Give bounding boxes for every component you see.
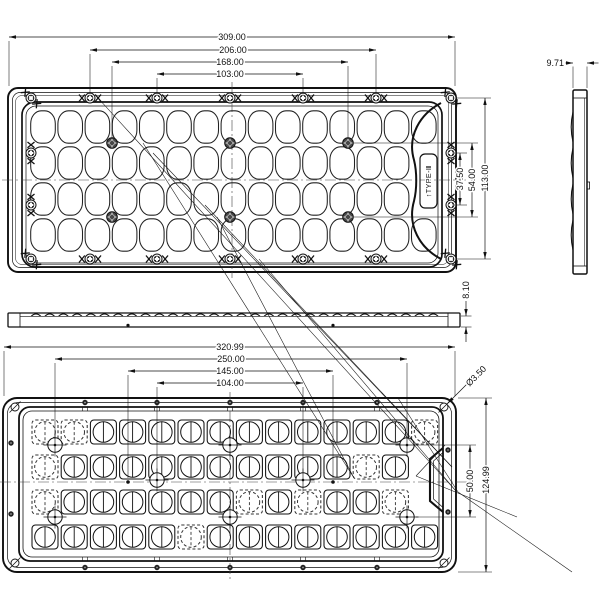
dim-arrow — [484, 398, 487, 405]
lens-oval — [31, 111, 56, 143]
dim-bottom-width-104: 104.00 — [216, 378, 244, 388]
side-profile-view — [571, 90, 589, 274]
ref-dot — [331, 324, 334, 327]
lens-oval — [194, 183, 219, 215]
dim-arrow — [296, 72, 303, 75]
lens-bump — [168, 314, 178, 316]
lens-oval — [357, 219, 382, 251]
side-view-outline — [573, 90, 587, 274]
lens-oval — [140, 111, 165, 143]
lens-oval — [194, 111, 219, 143]
lens-cell — [236, 490, 262, 514]
lens-cell — [178, 420, 204, 444]
dim-bottom-width-145: 145.00 — [216, 366, 244, 376]
lens-oval — [384, 147, 409, 179]
crosshair-screw-icon — [219, 434, 242, 457]
lens-bump — [45, 314, 55, 316]
dim-top-overall-width: 309.00 — [218, 32, 246, 42]
lens-oval — [248, 147, 273, 179]
lens-oval — [140, 219, 165, 251]
dim-arrow — [470, 210, 473, 217]
dim-top-width-206: 206.00 — [219, 45, 247, 55]
dim-top-width-103: 103.00 — [216, 69, 244, 79]
dim-arrow — [448, 345, 455, 348]
lens-cell — [120, 420, 146, 444]
lens-cell — [236, 525, 262, 549]
dim-arrow — [90, 48, 97, 51]
lens-bump — [86, 314, 96, 316]
lens-oval — [276, 111, 301, 143]
rivet-dot-icon — [8, 440, 13, 445]
lens-oval — [140, 147, 165, 179]
dim-top-height-37: 37.50 — [455, 168, 465, 191]
lens-oval — [221, 147, 246, 179]
torx-screw-icon — [225, 212, 236, 223]
lens-bump — [182, 314, 192, 316]
lens-cell — [120, 490, 146, 514]
lens-bump — [72, 314, 82, 316]
rail-screw-icon — [219, 254, 241, 264]
lens-cell — [382, 525, 408, 549]
lens-oval — [276, 219, 301, 251]
lens-cell — [90, 420, 116, 444]
rivet-dot-icon — [445, 447, 450, 452]
torx-screw-icon — [107, 138, 118, 149]
dim-arrow — [587, 61, 594, 64]
lens-bump — [374, 314, 384, 316]
dim-bottom-inner-height: 50.00 — [465, 470, 475, 493]
lens-cell — [61, 525, 87, 549]
rivet-dot-icon — [8, 511, 13, 516]
dim-bottom-outer-height: 124.99 — [481, 466, 491, 494]
lens-oval — [31, 219, 56, 251]
lens-cell — [324, 455, 350, 479]
rivet-dot-icon — [154, 565, 159, 570]
lens-oval — [384, 219, 409, 251]
lens-oval — [167, 219, 192, 251]
lens-bump — [415, 314, 425, 316]
lens-cell — [90, 525, 116, 549]
lens-cell — [412, 525, 438, 549]
lens-bump — [333, 314, 343, 316]
lens-oval — [58, 147, 83, 179]
dim-arrow — [483, 252, 486, 259]
lens-bump — [59, 314, 69, 316]
dim-arrow — [464, 309, 467, 316]
lens-oval — [112, 147, 137, 179]
top-view — [2, 82, 466, 278]
rail-screw-icon — [146, 254, 168, 264]
lens-oval — [248, 111, 273, 143]
dim-arrow — [369, 48, 376, 51]
profile-outline — [8, 313, 460, 327]
dim-top-height-113: 113.00 — [480, 165, 490, 192]
lens-bump — [346, 314, 356, 316]
lens-oval — [194, 147, 219, 179]
lens-oval — [85, 219, 110, 251]
lens-bump — [401, 314, 411, 316]
lens-cell — [236, 455, 262, 479]
dim-corner-hole-dia: Ø3.50 — [464, 364, 488, 388]
dim-arrow — [9, 35, 16, 38]
lens-oval — [58, 183, 83, 215]
lens-cell — [266, 490, 292, 514]
lens-oval — [221, 183, 246, 215]
dim-arrow — [566, 61, 573, 64]
lens-oval — [303, 111, 328, 143]
lens-oval — [330, 147, 355, 179]
dim-arrow — [157, 381, 164, 384]
corner-hole-icon — [10, 558, 21, 569]
rivet-dot-icon — [445, 509, 450, 514]
lens-oval — [167, 183, 192, 215]
lens-oval — [85, 111, 110, 143]
dimension-lines — [4, 35, 599, 572]
lens-oval — [357, 111, 382, 143]
lens-cell — [295, 525, 321, 549]
rivet-dot-icon — [374, 565, 379, 570]
drawing-sheet: 309.00 206.00 168.00 103.00 37.50 54.00 … — [0, 0, 600, 600]
dim-arrow — [448, 35, 455, 38]
corner-hole-icon — [10, 402, 21, 413]
lens-bump — [209, 314, 219, 316]
lens-oval — [330, 219, 355, 251]
lens-oval — [85, 147, 110, 179]
lens-bump — [278, 314, 288, 316]
rail-screw-icon — [79, 254, 101, 264]
lens-cell — [353, 490, 379, 514]
lens-oval — [303, 183, 328, 215]
rivet-dot-icon — [300, 565, 305, 570]
lens-cell — [207, 455, 233, 479]
lens-oval — [85, 183, 110, 215]
dim-arrow — [128, 369, 135, 372]
bottom-view — [0, 392, 468, 580]
lens-cell — [266, 420, 292, 444]
lens-bump — [319, 314, 329, 316]
dim-arrow — [157, 72, 164, 75]
lens-bump — [387, 314, 397, 316]
lens-cell — [295, 490, 321, 514]
dim-arrow — [4, 345, 11, 348]
lens-bump — [360, 314, 370, 316]
lens-oval — [276, 183, 301, 215]
lens-oval — [357, 183, 382, 215]
lens-cell — [32, 525, 58, 549]
lens-oval — [303, 147, 328, 179]
ref-dot — [126, 324, 129, 327]
lens-oval — [140, 183, 165, 215]
lens-oval — [112, 183, 137, 215]
lens-cell — [353, 420, 379, 444]
lens-cell — [120, 455, 146, 479]
rivet-dot-icon — [82, 565, 87, 570]
lens-oval — [248, 219, 273, 251]
lens-bump — [31, 314, 41, 316]
notch-bracket — [430, 448, 443, 512]
dim-arrow — [468, 510, 471, 517]
dim-bottom-overall-width: 320.99 — [216, 342, 244, 352]
lens-cell — [178, 455, 204, 479]
lens-cell — [207, 525, 233, 549]
dim-arrow — [464, 327, 467, 334]
dim-top-height-54: 54.00 — [467, 169, 477, 192]
lens-cell — [120, 525, 146, 549]
lens-bump — [141, 314, 151, 316]
lens-cell — [178, 490, 204, 514]
drawing-canvas: 309.00 206.00 168.00 103.00 37.50 54.00 … — [0, 0, 600, 600]
lens-cell — [353, 525, 379, 549]
lens-bump — [196, 314, 206, 316]
lens-cell — [90, 455, 116, 479]
dim-arrow — [400, 357, 407, 360]
long-profile-view — [8, 313, 460, 327]
ref-dot — [331, 480, 335, 484]
lens-oval — [167, 111, 192, 143]
lens-cell — [324, 490, 350, 514]
lens-oval — [58, 219, 83, 251]
dim-arrow — [341, 60, 348, 63]
lens-cell — [236, 420, 262, 444]
corner-hole-icon — [439, 558, 450, 569]
lens-cell — [178, 525, 204, 549]
lens-bump — [113, 314, 123, 316]
lens-oval — [276, 147, 301, 179]
lens-bump — [127, 314, 137, 316]
lens-oval — [167, 147, 192, 179]
torx-screw-icon — [343, 138, 354, 149]
rail-screw-icon — [292, 254, 314, 264]
dim-arrow — [326, 369, 333, 372]
lens-oval — [112, 219, 137, 251]
dim-arrow — [458, 153, 461, 160]
dim-arrow — [458, 198, 461, 205]
rivet-dot-icon — [82, 400, 87, 405]
dim-arrow — [296, 381, 303, 384]
lens-cell — [382, 455, 408, 479]
dim-bottom-width-250: 250.00 — [217, 354, 245, 364]
lens-cell — [61, 455, 87, 479]
lens-cell — [353, 455, 379, 479]
lens-bump — [429, 314, 439, 316]
lens-bump — [155, 314, 165, 316]
dim-profile-thickness: 8.10 — [461, 281, 471, 299]
lens-cell — [149, 420, 175, 444]
lens-cell — [61, 490, 87, 514]
lens-bump — [223, 314, 233, 316]
lens-cell — [324, 525, 350, 549]
lens-cell — [32, 455, 58, 479]
torx-screw-icon — [343, 212, 354, 223]
lens-bump — [237, 314, 247, 316]
ref-dot — [126, 480, 130, 484]
lens-oval — [357, 147, 382, 179]
rail-screw-icon — [365, 254, 387, 264]
dim-arrow — [112, 60, 119, 63]
rivet-dot-icon — [227, 565, 232, 570]
rivet-dot-icon — [227, 400, 232, 405]
lens-cell — [90, 490, 116, 514]
lens-oval — [194, 219, 219, 251]
type-label: ↑TYPE-Ⅲ — [424, 165, 433, 198]
torx-screw-icon — [107, 212, 118, 223]
lens-cell — [149, 490, 175, 514]
lens-cell — [324, 420, 350, 444]
dim-arrow — [484, 565, 487, 572]
rail-screw-icon — [26, 142, 36, 164]
side-tab — [587, 182, 590, 189]
dim-arrow — [483, 98, 486, 105]
lens-bump — [100, 314, 110, 316]
lens-cell — [266, 525, 292, 549]
lens-cell — [412, 420, 438, 444]
dim-arrow — [55, 357, 62, 360]
lens-cell — [149, 525, 175, 549]
lens-oval — [384, 111, 409, 143]
torx-screw-icon — [225, 138, 236, 149]
lens-oval — [330, 183, 355, 215]
dim-arrow — [470, 143, 473, 150]
dim-arrow — [468, 445, 471, 452]
lens-oval — [384, 183, 409, 215]
lens-cell — [295, 420, 321, 444]
lens-cell — [61, 420, 87, 444]
lens-oval — [58, 111, 83, 143]
lens-oval — [248, 183, 273, 215]
lens-cell — [266, 455, 292, 479]
lens-oval — [303, 219, 328, 251]
dim-top-width-168: 168.00 — [216, 57, 244, 67]
dim-side-thickness: 9.71 — [546, 58, 564, 68]
